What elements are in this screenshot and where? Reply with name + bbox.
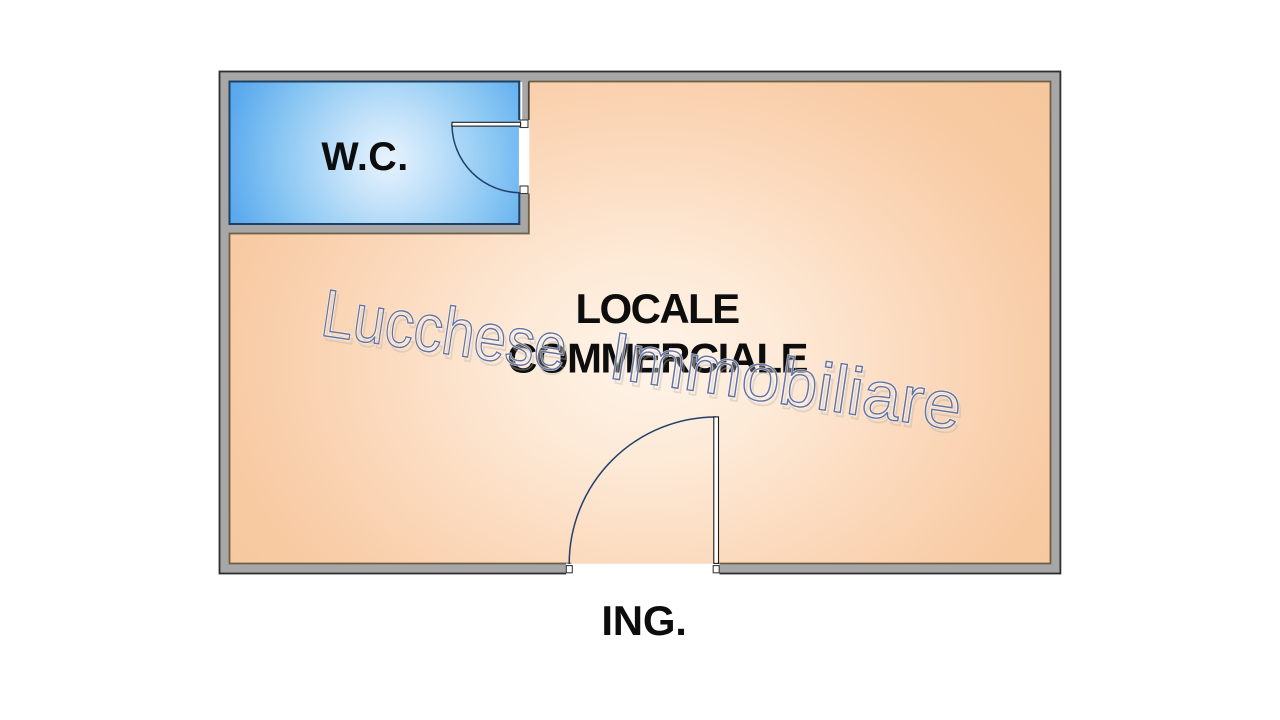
svg-text:W.C.: W.C. xyxy=(321,135,408,179)
svg-text:ING.: ING. xyxy=(601,597,686,644)
